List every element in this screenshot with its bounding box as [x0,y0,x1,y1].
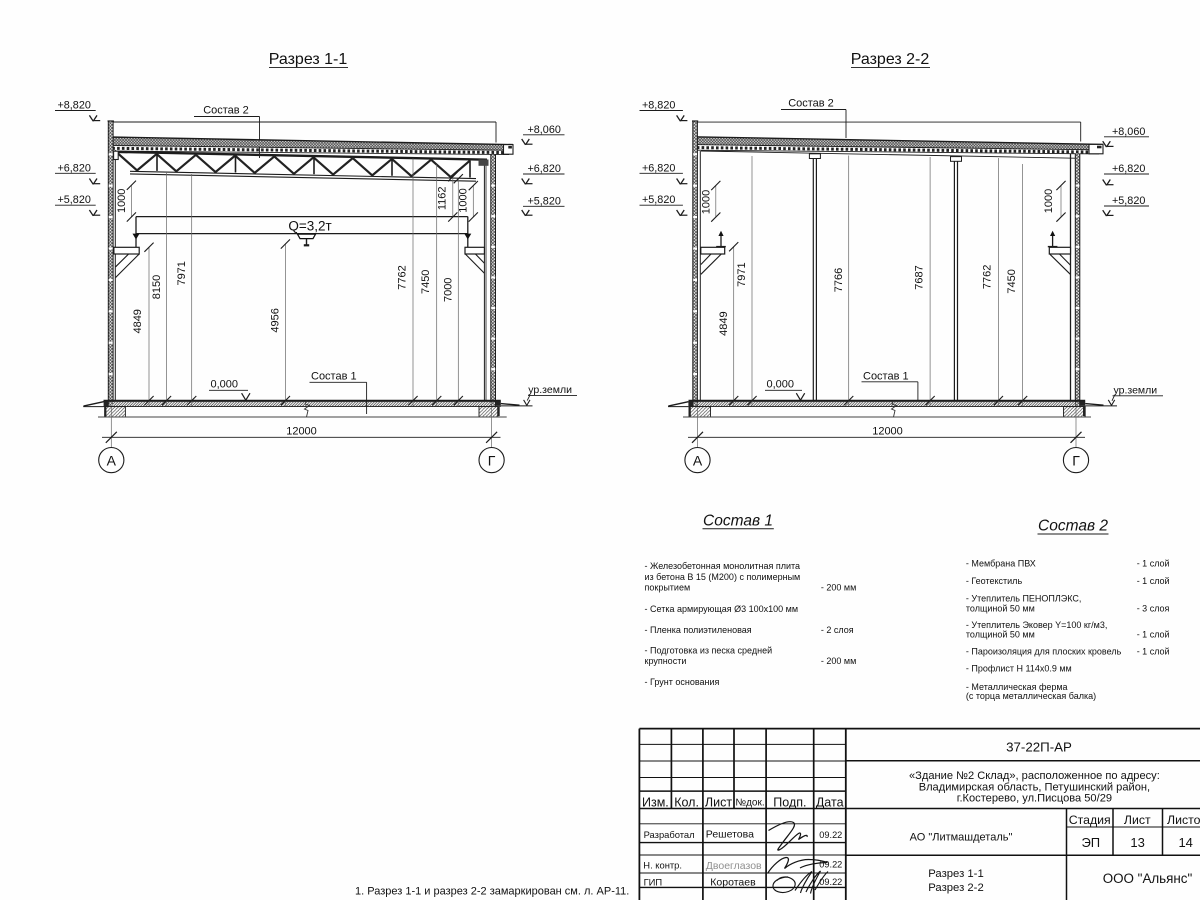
svg-text:Г: Г [488,452,496,468]
svg-text:Кол.: Кол. [674,795,699,809]
svg-text:Q=3,2т: Q=3,2т [288,219,331,234]
svg-text:13: 13 [1130,835,1144,850]
svg-text:А: А [107,452,117,468]
svg-text:7450: 7450 [420,270,432,294]
svg-text:(с торца металлическая балка): (с торца металлическая балка) [966,691,1096,701]
svg-text:- Железобетонная монолитная п: - Железобетонная монолитная плита [645,561,801,571]
svg-text:- Грунт основания: - Грунт основания [645,677,720,687]
svg-text:1000: 1000 [457,188,469,212]
svg-text:г.Костерево, ул.Писцова 50/29: г.Костерево, ул.Писцова 50/29 [957,793,1112,805]
svg-text:Состав 2: Состав 2 [788,98,834,110]
svg-text:37-22П-АР: 37-22П-АР [1006,739,1072,754]
svg-text:Двоеглазов: Двоеглазов [706,860,762,872]
svg-text:7762: 7762 [982,265,994,289]
svg-text:- Подготовка из песка средней: - Подготовка из песка средней [645,645,773,655]
svg-text:Изм.: Изм. [642,795,669,809]
svg-text:- Геотекстиль: - Геотекстиль [966,576,1023,586]
svg-text:+8,820: +8,820 [58,100,91,112]
svg-text:Дата: Дата [816,795,844,809]
svg-text:12000: 12000 [872,425,903,437]
svg-text:0,000: 0,000 [211,379,239,391]
svg-text:Состав 2: Состав 2 [203,105,249,117]
svg-text:Листов: Листов [1167,813,1200,827]
svg-text:Подп.: Подп. [773,795,806,809]
svg-text:Н. контр.: Н. контр. [643,859,682,870]
svg-text:Разрез 1-1: Разрез 1-1 [928,868,983,880]
svg-text:- 1 слой: - 1 слой [1137,576,1170,586]
svg-text:- Пароизоляция для плоских кро: - Пароизоляция для плоских кровель [966,647,1122,657]
svg-text:- Пленка полиэтиленовая: - Пленка полиэтиленовая [645,625,752,635]
svg-text:7971: 7971 [176,261,188,285]
svg-text:Лист: Лист [1124,813,1151,827]
svg-text:- Утеплитель ПЕНОПЛЭКС,: - Утеплитель ПЕНОПЛЭКС, [966,594,1082,604]
svg-text:7762: 7762 [396,265,408,289]
svg-text:7687: 7687 [913,265,925,289]
svg-text:- 1 слой: - 1 слой [1137,647,1170,657]
svg-text:09.22: 09.22 [819,830,842,840]
svg-text:- 3 слоя: - 3 слоя [1137,604,1170,614]
svg-text:- 1 слой: - 1 слой [1137,559,1170,569]
svg-text:Разрез 1-1: Разрез 1-1 [269,51,348,68]
svg-text:1162: 1162 [437,186,449,210]
svg-text:12000: 12000 [286,425,317,437]
svg-text:АО "Литмашдеталь": АО "Литмашдеталь" [910,832,1013,844]
svg-text:Стадия: Стадия [1069,813,1111,827]
svg-text:толщиной 50 мм: толщиной 50 мм [966,604,1035,614]
svg-text:Г: Г [1072,452,1080,468]
svg-text:- 2 слоя: - 2 слоя [821,625,854,635]
svg-text:+6,820: +6,820 [58,162,91,174]
svg-text:+5,820: +5,820 [528,195,561,207]
svg-text:- Профлист Н 114х0.9 мм: - Профлист Н 114х0.9 мм [966,663,1072,673]
svg-text:толщиной 50 мм: толщиной 50 мм [966,630,1035,640]
svg-text:1000: 1000 [701,190,713,214]
svg-text:+8,820: +8,820 [642,100,675,112]
svg-text:Разработал: Разработал [644,829,695,840]
svg-text:покрытием: покрытием [645,583,691,593]
svg-text:крупности: крупности [645,656,687,666]
svg-text:7450: 7450 [1006,269,1018,293]
svg-text:Состав 1: Состав 1 [311,371,357,383]
svg-text:№док.: №док. [735,797,764,808]
svg-text:ГИП: ГИП [644,876,663,887]
svg-text:ур.земли: ур.земли [528,384,572,396]
svg-text:0,000: 0,000 [767,379,795,391]
svg-text:Состав 2: Состав 2 [1038,518,1108,535]
svg-text:4849: 4849 [132,309,144,333]
svg-text:Решетова: Решетова [706,829,754,841]
svg-text:8150: 8150 [151,275,163,299]
svg-text:+5,820: +5,820 [1112,195,1145,207]
svg-text:ур.земли: ур.земли [1114,385,1158,397]
svg-text:ЭП: ЭП [1081,835,1100,850]
svg-text:+6,820: +6,820 [642,162,675,174]
svg-text:Разрез 2-2: Разрез 2-2 [851,51,930,68]
svg-text:- Сетка армирующая Ø3 100х100: - Сетка армирующая Ø3 100х100 мм [645,604,799,614]
svg-text:1000: 1000 [116,189,128,213]
svg-text:+6,820: +6,820 [528,163,561,175]
svg-text:+8,060: +8,060 [528,124,561,136]
svg-text:- 200 мм: - 200 мм [821,583,856,593]
svg-text:Разрез 2-2: Разрез 2-2 [928,882,983,894]
svg-text:- Мембрана ПВХ: - Мембрана ПВХ [966,559,1036,569]
svg-text:1. Разрез 1-1 и разрез 2-2 зам: 1. Разрез 1-1 и разрез 2-2 замаркирован … [355,886,629,898]
svg-text:- 200 мм: - 200 мм [821,656,856,666]
svg-text:ООО "Альянс": ООО "Альянс" [1103,871,1193,886]
svg-text:Лист: Лист [705,795,732,809]
svg-text:+5,820: +5,820 [58,194,91,206]
svg-text:4849: 4849 [718,311,730,335]
svg-text:Коротаев: Коротаев [710,876,756,888]
svg-text:из бетона В 15 (М200) с полиме: из бетона В 15 (М200) с полимерным [645,572,801,582]
svg-text:14: 14 [1178,835,1192,850]
svg-text:1000: 1000 [1043,189,1055,213]
svg-text:7766: 7766 [833,268,845,292]
svg-text:+5,820: +5,820 [642,194,675,206]
svg-text:7971: 7971 [736,262,748,286]
svg-text:А: А [693,452,703,468]
svg-text:7000: 7000 [443,278,455,302]
svg-text:4956: 4956 [269,308,281,332]
svg-text:«Здание №2 Склад», расположенн: «Здание №2 Склад», расположенное по адре… [909,770,1160,782]
svg-text:Состав 1: Состав 1 [703,513,773,530]
svg-text:Состав 1: Состав 1 [863,371,909,383]
svg-text:+8,060: +8,060 [1112,126,1145,138]
svg-text:- 1 слой: - 1 слой [1137,630,1170,640]
svg-text:+6,820: +6,820 [1112,163,1145,175]
